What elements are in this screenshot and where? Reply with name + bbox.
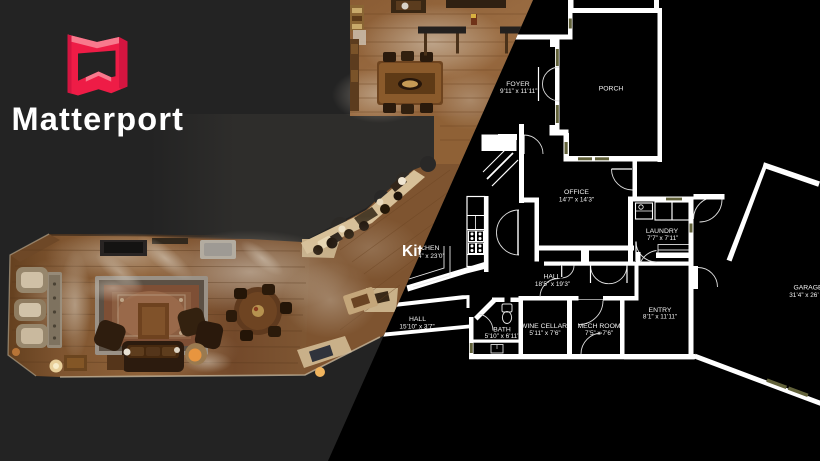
svg-text:7’5” x 7’6”: 7’5” x 7’6”	[585, 330, 613, 337]
svg-text:OFFICE: OFFICE	[564, 189, 589, 196]
svg-text:HALL: HALL	[409, 316, 426, 323]
svg-text:GARAGE: GARAGE	[793, 285, 820, 292]
svg-text:PORCH: PORCH	[599, 86, 624, 93]
svg-text:WINE CELLAR: WINE CELLAR	[521, 323, 567, 330]
svg-text:7’7” x 7’11”: 7’7” x 7’11”	[647, 235, 678, 242]
svg-text:18’5” x 19’3”: 18’5” x 19’3”	[535, 281, 570, 288]
svg-text:15’10” x 3’7”: 15’10” x 3’7”	[399, 324, 434, 331]
svg-text:9’11” x 11’11”: 9’11” x 11’11”	[500, 88, 537, 95]
svg-text:8’1” x 11’11”: 8’1” x 11’11”	[643, 314, 677, 321]
svg-text:Matterport: Matterport	[12, 101, 185, 137]
svg-text:FOYER: FOYER	[506, 81, 530, 88]
svg-text:LAUNDRY: LAUNDRY	[646, 228, 679, 235]
svg-text:5’10” x 6’11”: 5’10” x 6’11”	[485, 333, 520, 340]
svg-text:HALL: HALL	[543, 274, 560, 281]
svg-text:MECH ROOM: MECH ROOM	[577, 323, 620, 330]
svg-text:5’11” x 7’6”: 5’11” x 7’6”	[529, 330, 560, 337]
svg-text:14’7” x 14’3”: 14’7” x 14’3”	[559, 196, 594, 203]
svg-text:31’4” x 26’: 31’4” x 26’	[789, 292, 819, 299]
